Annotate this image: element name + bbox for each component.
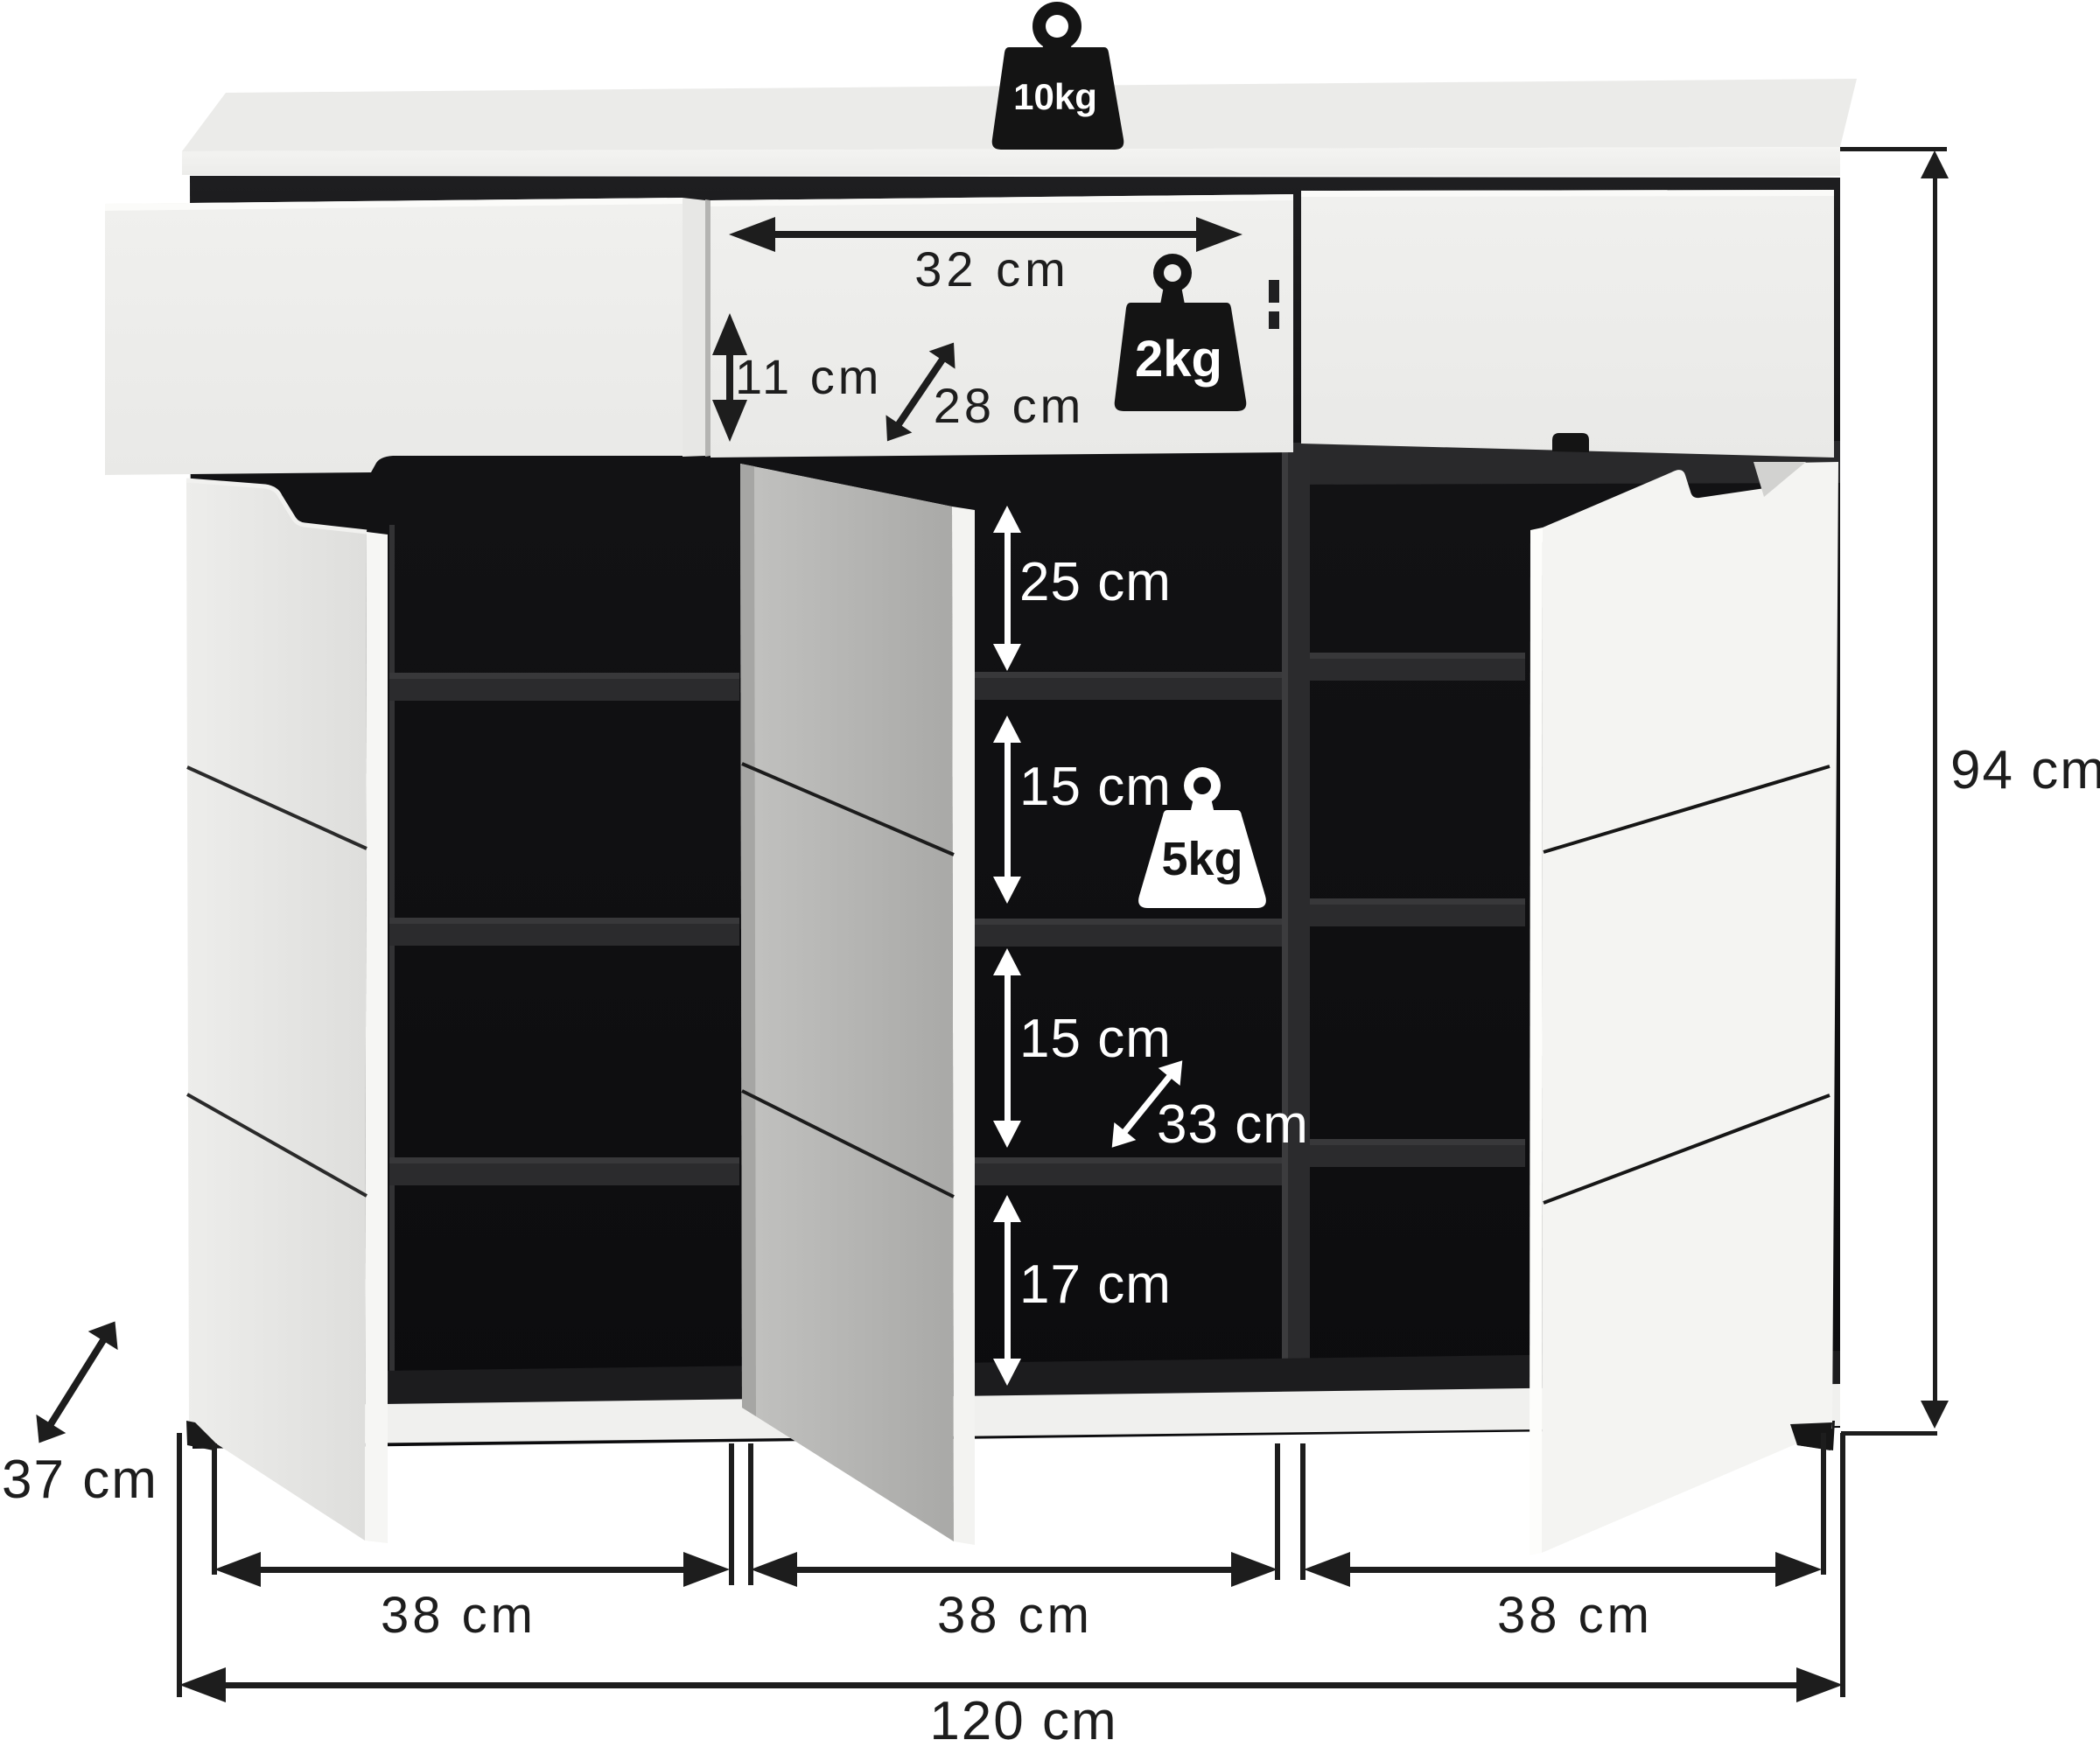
svg-text:38 cm: 38 cm [1497, 1587, 1653, 1644]
svg-text:17 cm: 17 cm [1019, 1254, 1172, 1315]
svg-text:38 cm: 38 cm [937, 1587, 1093, 1644]
svg-text:28 cm: 28 cm [934, 378, 1085, 433]
svg-text:120 cm: 120 cm [929, 1691, 1117, 1740]
svg-text:10kg: 10kg [1013, 76, 1097, 117]
svg-text:15 cm: 15 cm [1019, 1009, 1172, 1069]
svg-text:15 cm: 15 cm [1019, 757, 1172, 817]
svg-text:5kg: 5kg [1161, 833, 1242, 885]
svg-text:33 cm: 33 cm [1157, 1094, 1309, 1155]
svg-text:25 cm: 25 cm [1019, 552, 1172, 612]
svg-text:94 cm: 94 cm [1950, 740, 2100, 800]
svg-text:37 cm: 37 cm [2, 1450, 158, 1510]
svg-text:32 cm: 32 cm [914, 241, 1070, 297]
svg-text:2kg: 2kg [1135, 331, 1222, 388]
svg-text:38 cm: 38 cm [381, 1587, 536, 1644]
svg-text:11 cm: 11 cm [735, 349, 882, 404]
